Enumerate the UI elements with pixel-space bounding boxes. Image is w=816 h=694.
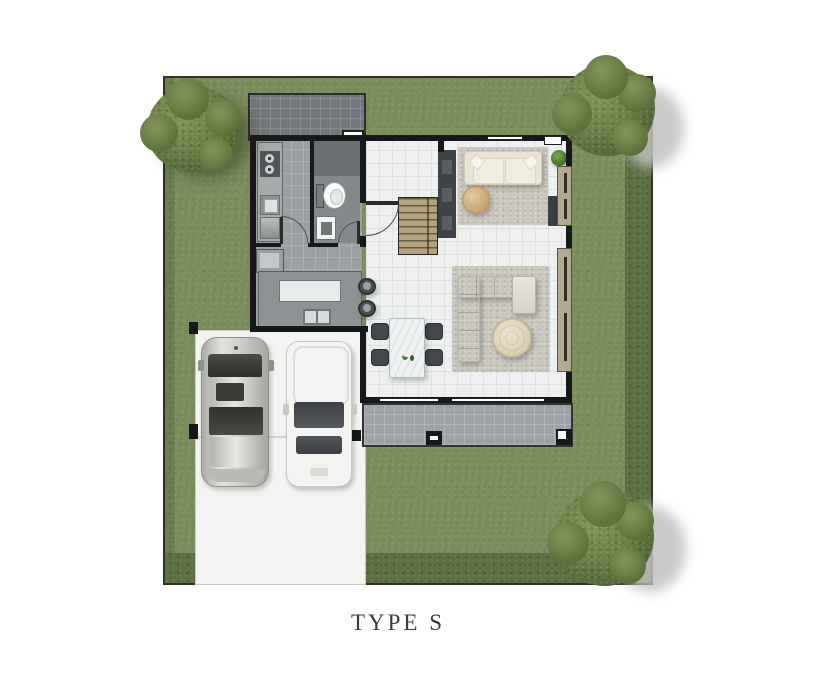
white-car-glass: [294, 402, 344, 428]
sedan-windshield: [208, 354, 262, 377]
wall-left: [250, 135, 256, 332]
terrace-post-left: [426, 431, 442, 445]
top-wall-window: [488, 136, 522, 140]
bathroom-door-panel: [357, 221, 360, 244]
kitchen-cabinet-inner: [260, 253, 279, 268]
sliding-door-right: [452, 398, 544, 402]
island-sink-basin-2: [318, 311, 329, 323]
rear-terrace: [362, 403, 573, 447]
sectional-sofa-left-arm: [458, 276, 480, 362]
wall-kitchen-bottom: [250, 326, 368, 332]
floor-plan-canvas: TYPE S: [0, 0, 816, 694]
staircase: [398, 197, 438, 255]
tv-console-shelf-3: [442, 216, 452, 230]
kitchen-sink-top: [260, 195, 280, 215]
kitchen-appliance: [260, 217, 280, 239]
corner-plant: [551, 150, 567, 166]
sedan-rear-glass: [209, 407, 263, 435]
stove-burner-2: [265, 165, 274, 174]
dining-chair-top-right: [425, 323, 443, 340]
stove-burner-1: [265, 154, 274, 163]
toilet-bowl-inner: [330, 189, 343, 205]
dining-chair-bottom-left: [371, 349, 389, 366]
wall-kitchen-hall-seg1: [255, 243, 281, 247]
terrace-post-right: [556, 429, 572, 445]
white-car: [286, 341, 352, 487]
front-door-panel: [366, 201, 399, 205]
right-window-lower-pane-1: [564, 257, 567, 301]
sliding-door-left: [380, 398, 438, 402]
terrace-post-right-notch: [558, 431, 566, 439]
tree-top-right: [560, 64, 655, 156]
tv-console-shelf-2: [442, 188, 452, 202]
island-sink: [303, 309, 331, 325]
wall-hall-upper: [360, 135, 366, 203]
round-coffee-table: [492, 318, 532, 358]
dining-centerpiece-plant: [399, 339, 415, 357]
wall-kitchen-hall-seg2: [308, 243, 338, 247]
white-car-roof-outline: [293, 346, 349, 406]
silver-sedan: [201, 337, 269, 487]
sedan-antenna: [234, 346, 238, 350]
white-car-mirror-left: [283, 404, 289, 415]
tree-top-left-lobe-1: [140, 114, 178, 152]
white-car-plate: [310, 468, 328, 476]
terrace-post-left-notch: [430, 436, 438, 440]
tree-top-right-lobe-1: [552, 94, 592, 134]
bathroom-sink: [316, 216, 336, 240]
sedan-sunroof: [216, 383, 244, 401]
tree-bottom-right-lobe-3: [580, 481, 626, 527]
sedan-mirror-right: [268, 360, 274, 371]
tree-bottom-right: [556, 490, 654, 586]
dining-table: [389, 318, 425, 378]
island-counter-opening: [279, 280, 341, 302]
island-counter: [258, 271, 362, 329]
stair-rail: [427, 198, 429, 254]
tree-bottom-right-lobe-1: [547, 522, 589, 564]
tree-top-right-lobe-3: [584, 55, 628, 99]
bar-stool-2-seat: [363, 304, 371, 312]
carport-post-left-1: [189, 322, 198, 334]
sedan-trunk: [210, 437, 262, 467]
island-sink-basin-1: [305, 311, 316, 323]
white-car-grille: [296, 436, 342, 454]
bar-stool-1: [358, 278, 376, 295]
plan-caption: TYPE S: [163, 610, 633, 636]
stove: [260, 151, 280, 177]
kitchen-door-panel: [280, 217, 283, 244]
round-ottoman: [462, 186, 490, 214]
wall-hall-below-door: [360, 236, 366, 247]
sedan-mirror-left: [198, 360, 204, 371]
tree-top-left: [147, 86, 239, 172]
wall-bathroom-left: [310, 140, 314, 244]
wall-top: [250, 135, 572, 141]
kitchen-sink-basin: [264, 199, 278, 213]
tree-top-left-lobe-3: [167, 78, 209, 120]
cream-sofa: [464, 151, 542, 185]
carport-post-left-2: [189, 424, 198, 439]
tree-top-left-lobe-4: [199, 138, 233, 172]
kitchen-cabinet-lower: [256, 249, 284, 273]
tree-top-left-lobe-2: [205, 100, 241, 136]
toilet-bowl: [323, 182, 346, 209]
bathroom-sink-basin: [321, 222, 332, 235]
sedan-bumper: [207, 469, 265, 482]
tv-console-shelf-1: [442, 160, 452, 174]
dining-chair-bottom-right: [425, 349, 443, 366]
tv-console-wall: [438, 150, 456, 238]
right-window-upper-pane-1: [564, 173, 567, 193]
sectional-sofa-chaise: [512, 276, 536, 314]
bar-stool-1-seat: [363, 282, 371, 290]
tree-bottom-right-lobe-4: [610, 548, 646, 584]
white-car-mirror-right: [351, 404, 357, 415]
right-window-lower-pane-2: [564, 313, 567, 361]
bathroom-floor-shower: [314, 140, 360, 176]
vent-box: [544, 136, 562, 145]
right-window-upper-pane-2: [564, 199, 567, 219]
tree-top-right-lobe-4: [612, 120, 648, 156]
right-window-upper: [557, 166, 572, 226]
right-window-lower: [557, 248, 572, 372]
bar-stool-2: [358, 300, 376, 317]
wall-hall-lower: [360, 326, 366, 403]
dining-chair-top-left: [371, 323, 389, 340]
